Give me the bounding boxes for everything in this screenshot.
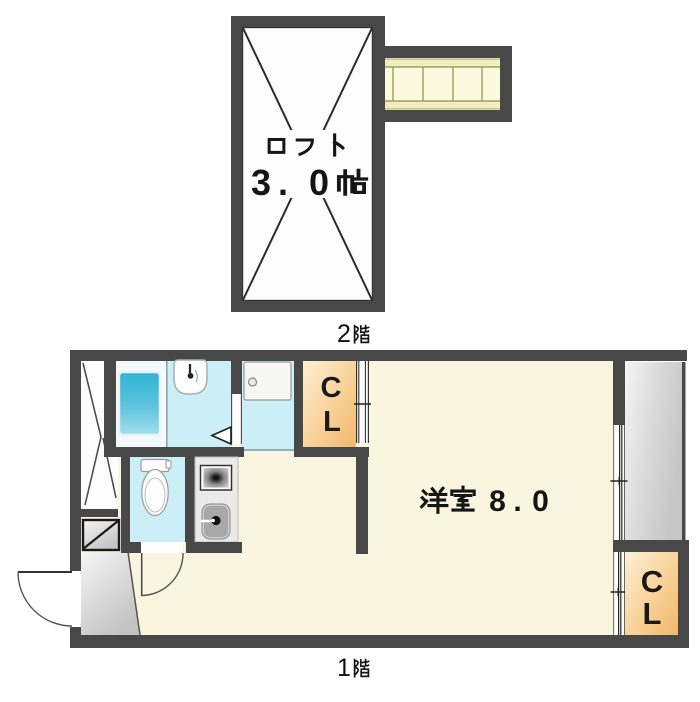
- svg-text:2: 2: [337, 320, 351, 348]
- svg-text:L: L: [643, 596, 662, 631]
- svg-text:C: C: [641, 564, 663, 599]
- svg-text:8: 8: [489, 485, 506, 518]
- svg-text:C: C: [321, 372, 342, 404]
- svg-text:.: .: [278, 162, 288, 203]
- svg-text:1: 1: [337, 654, 351, 682]
- svg-text:3: 3: [251, 162, 271, 203]
- svg-text:L: L: [323, 406, 341, 438]
- svg-text:.: .: [513, 485, 521, 518]
- svg-text:0: 0: [309, 162, 329, 203]
- svg-text:0: 0: [532, 485, 549, 518]
